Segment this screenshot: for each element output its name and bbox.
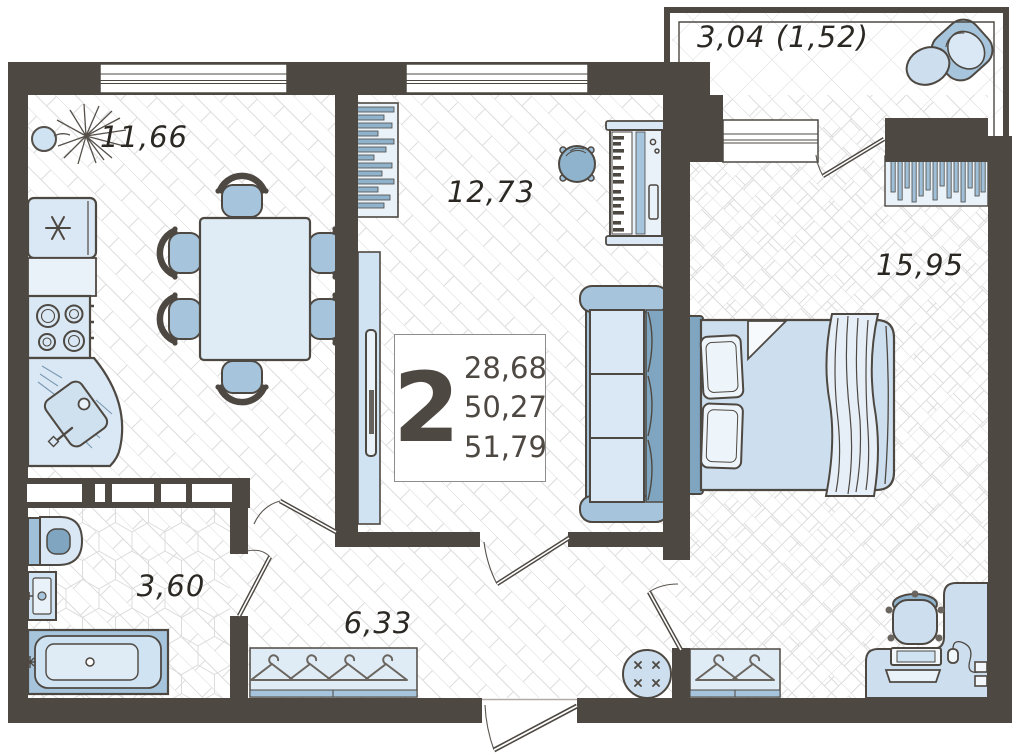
area-value-total: 50,27: [464, 388, 547, 427]
blanket: [826, 314, 878, 496]
hallway-wardrobe: [250, 648, 417, 697]
pillow: [701, 403, 743, 468]
piano-stool: [559, 146, 595, 182]
wall-bedroom-stub: [672, 648, 690, 698]
monitor-icon: [891, 648, 941, 665]
wall-living-bottom-left: [335, 532, 480, 547]
balcony-area-label: 3,04 (1,52): [697, 20, 869, 54]
pillow: [700, 335, 743, 399]
stove: [28, 296, 94, 358]
bathroom-sink: [25, 572, 56, 620]
wall-living-bedroom: [663, 95, 690, 560]
area-value-total-with-balcony: 51,79: [464, 428, 547, 467]
wall-kitchen-living: [335, 95, 358, 547]
pouf: [623, 650, 671, 698]
entrance-door: [482, 700, 577, 751]
wall-balcony-right-block: [885, 118, 988, 162]
bookshelf: [352, 103, 398, 217]
socket-icon: [975, 662, 987, 672]
kitchen-window: [100, 64, 287, 93]
floor-plan-page: 11,66 12,73 15,95 3,60 6,33 3,04 (1,52) …: [0, 0, 1018, 753]
kitchen-area-label: 11,66: [100, 120, 188, 154]
apartment-info-card: 2 28,68 50,27 51,79: [394, 334, 546, 482]
rooms-count: 2: [393, 365, 457, 451]
sofa: [580, 286, 668, 522]
bathroom-area-label: 3,60: [137, 569, 206, 603]
socket-icon: [975, 676, 987, 686]
wall-bottom-right: [577, 698, 1012, 723]
area-value-living: 28,68: [464, 349, 547, 388]
dining-table: [200, 218, 310, 360]
tv-unit: [358, 252, 380, 524]
bedroom-wardrobe: [690, 649, 780, 697]
fridge: [28, 198, 96, 258]
wall-balcony-left-block: [690, 95, 723, 162]
bed: [687, 314, 894, 496]
kitchen-counter: [28, 258, 96, 296]
tv-icon: [366, 330, 376, 456]
bedroom-area-label: 15,95: [876, 248, 964, 282]
living-room-window: [406, 64, 588, 93]
wall-bathroom-right-lower: [230, 616, 248, 698]
living-room-area-label: 12,73: [447, 175, 535, 209]
keyboard-icon: [886, 670, 940, 682]
area-values: 28,68 50,27 51,79: [464, 349, 547, 466]
wall-right: [988, 136, 1012, 723]
hallway-area-label: 6,33: [344, 606, 413, 640]
toilet: [28, 517, 82, 565]
clothes-rack: [885, 156, 988, 206]
wall-bottom-left: [8, 698, 482, 723]
balcony-window: [723, 120, 818, 162]
wall-living-bottom-right: [568, 532, 663, 547]
piano: [606, 121, 666, 245]
wall-left: [8, 62, 28, 723]
wall-bathroom-right-upper: [230, 478, 248, 554]
bathtub: [24, 630, 168, 694]
